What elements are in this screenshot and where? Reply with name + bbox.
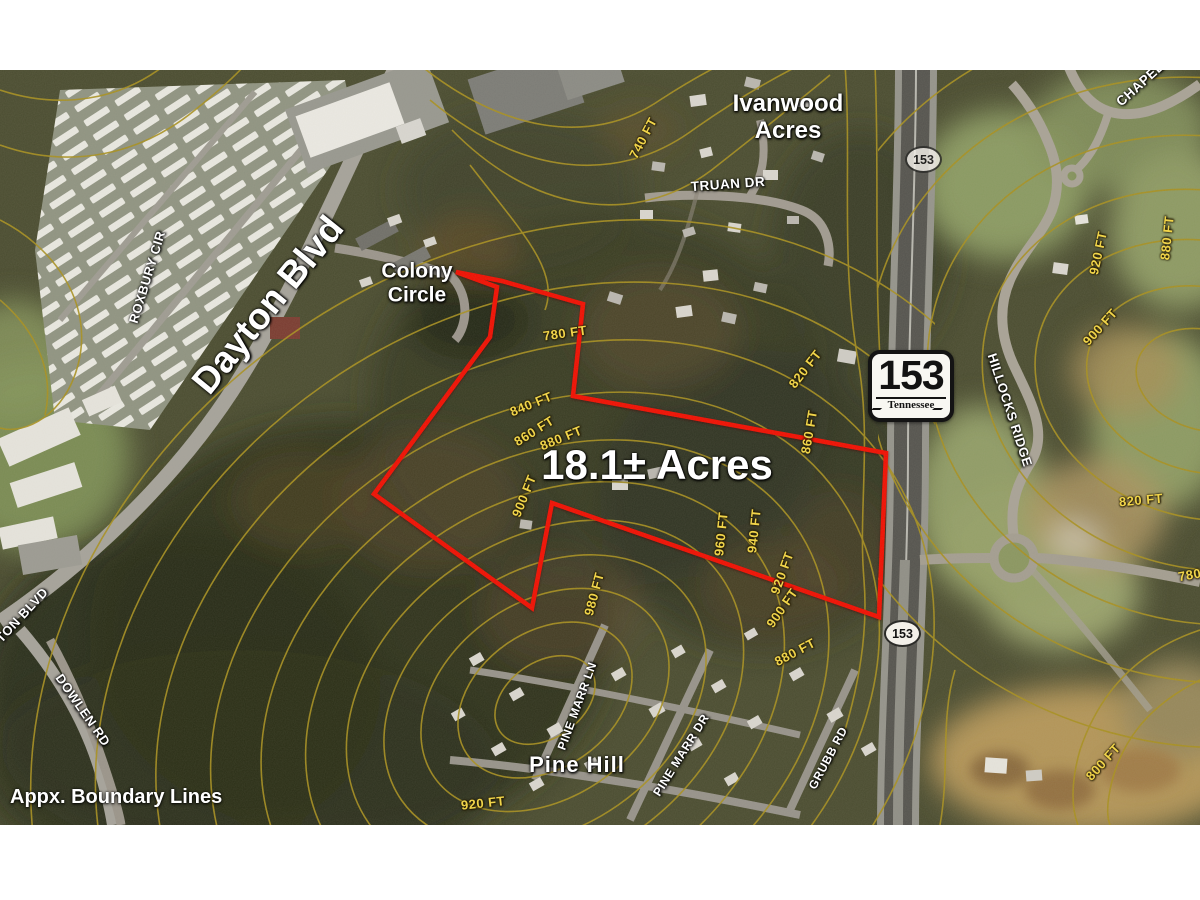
shield-route-number: 153 (878, 355, 943, 396)
listing-map-image: Dayton Blvd Colony Circle Ivanwood Acres… (0, 0, 1200, 900)
highway-shield-153: 153 Tennessee (868, 350, 954, 422)
aerial-map: Dayton Blvd Colony Circle Ivanwood Acres… (0, 70, 1200, 825)
route-marker-153-south: 153 (884, 620, 921, 647)
acreage-label: 18.1± Acres (541, 441, 773, 489)
street-label-colony-circle: Colony Circle (381, 259, 452, 306)
boundary-note: Appx. Boundary Lines (10, 786, 222, 809)
top-margin (0, 0, 1200, 70)
bottom-margin (0, 825, 1200, 900)
shield-state-row: Tennessee (876, 397, 946, 412)
route-marker-153-north: 153 (905, 146, 942, 173)
place-label-pine-hill: Pine Hill (529, 752, 625, 778)
shield-state-name: Tennessee (885, 399, 937, 412)
place-label-ivanwood-acres: Ivanwood Acres (733, 91, 844, 145)
